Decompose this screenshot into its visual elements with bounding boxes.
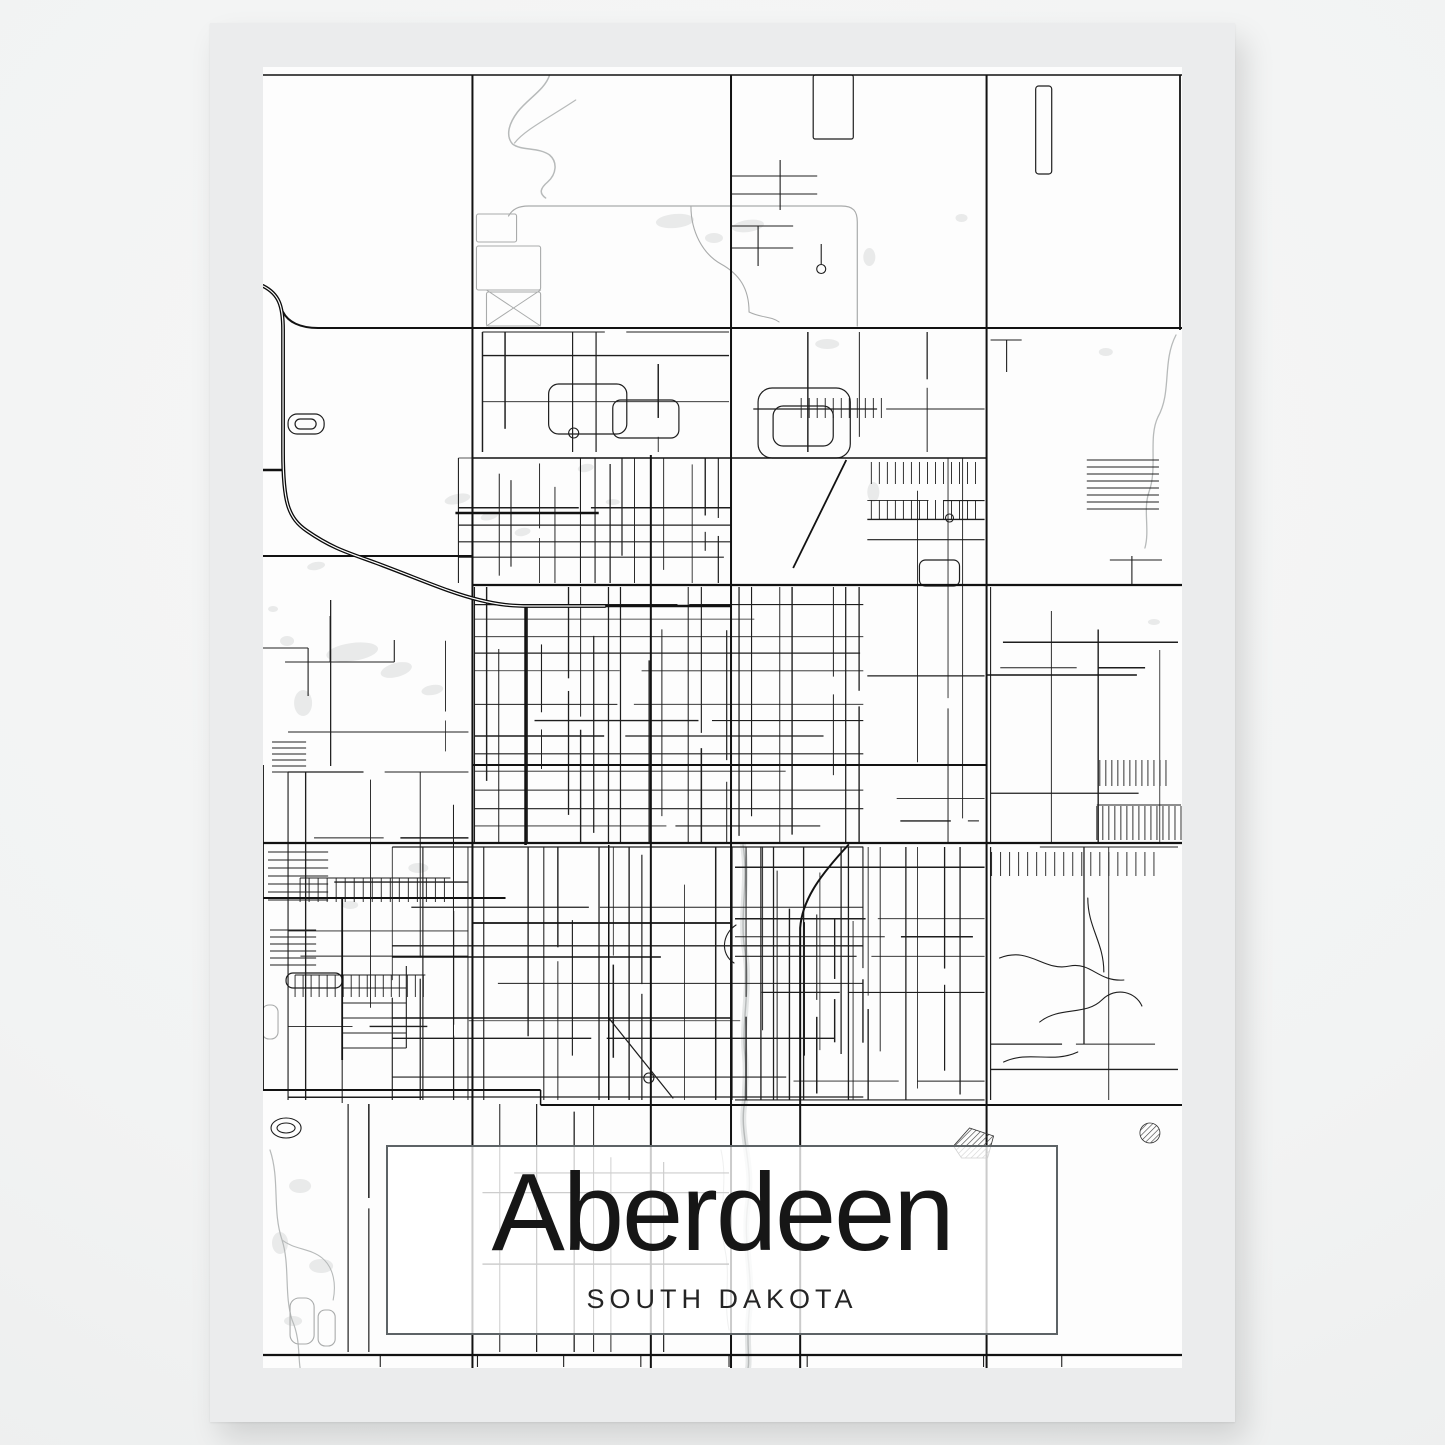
page-background: Aberdeen SOUTH DAKOTA [0,0,1445,1445]
city-title: Aberdeen [491,1158,952,1268]
map-poster: Aberdeen SOUTH DAKOTA [210,23,1235,1422]
map-area: Aberdeen SOUTH DAKOTA [263,67,1182,1368]
map-title-box: Aberdeen SOUTH DAKOTA [386,1145,1058,1335]
state-subtitle: SOUTH DAKOTA [586,1284,857,1315]
